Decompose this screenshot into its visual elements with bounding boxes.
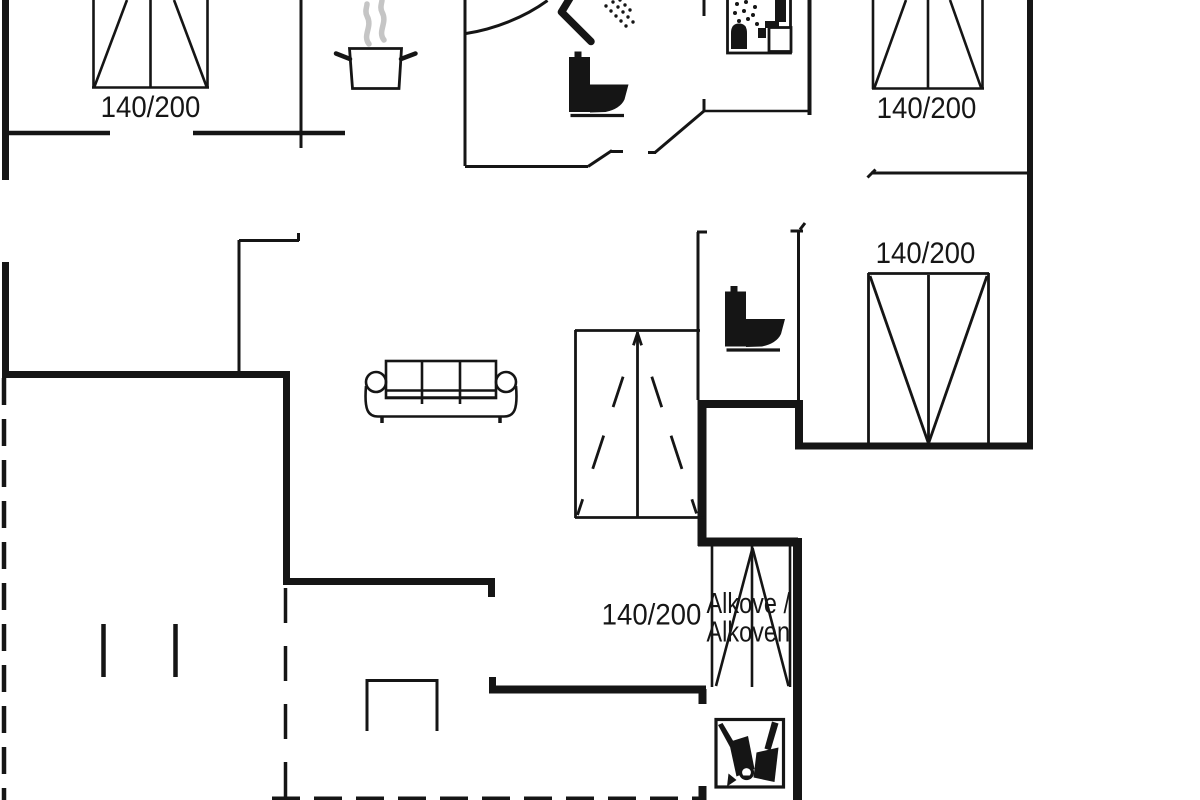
svg-text:140/200: 140/200 (602, 598, 702, 631)
svg-text:140/200: 140/200 (877, 92, 977, 125)
svg-text:Alkoven: Alkoven (707, 615, 791, 648)
svg-text:140/200: 140/200 (101, 91, 201, 124)
svg-text:140/200: 140/200 (876, 237, 976, 270)
